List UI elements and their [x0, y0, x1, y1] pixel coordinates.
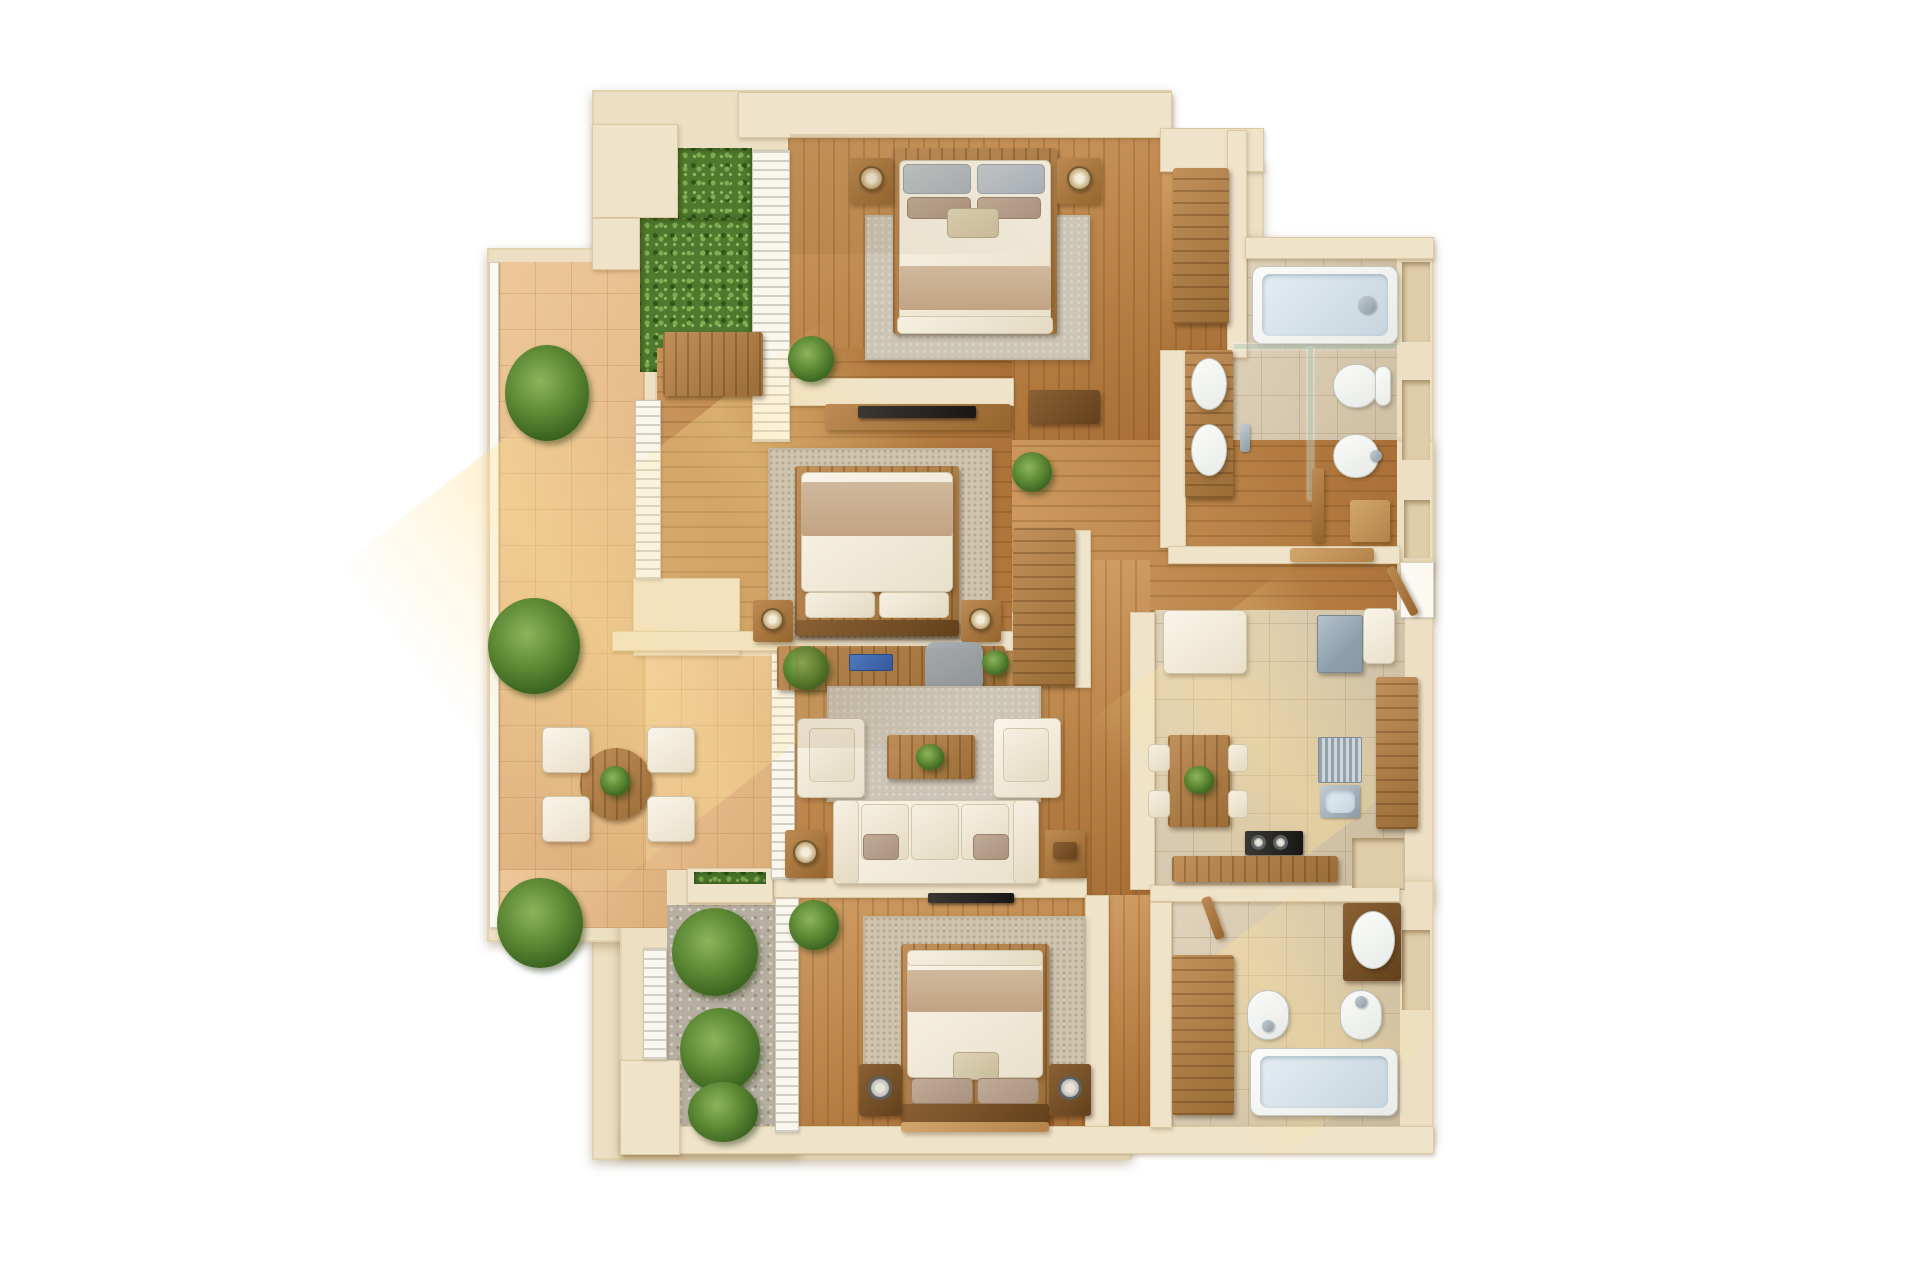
wall-top: [738, 92, 1172, 138]
bidet-2-tap: [1355, 996, 1367, 1008]
bed-3-footroll: [907, 950, 1043, 966]
wall-top-right-patch: [1160, 128, 1264, 172]
terrace-table-plant: [600, 766, 630, 796]
bed-2-headboard: [795, 620, 959, 636]
niche-right-d: [1402, 930, 1430, 1010]
hall-floor-lower: [1108, 895, 1150, 1128]
terrace-chair-c: [542, 796, 590, 842]
kitchen-burner-a: [1251, 835, 1266, 850]
bed-1-pillow-b: [977, 164, 1045, 194]
kitchen-counter-bottom: [1172, 856, 1338, 882]
window-planter-left: [643, 948, 667, 1060]
wall-bathroom-1-top: [1245, 237, 1434, 259]
bed-1-cushion: [947, 208, 999, 238]
shower-glass-h: [1234, 344, 1397, 349]
bed-1-pillow-a: [903, 164, 971, 194]
wall-planter-corner: [620, 1060, 680, 1155]
bed-2-pillow-b: [879, 592, 949, 618]
terrace-palm-mid: [488, 598, 580, 694]
sofa-arm-right: [1013, 800, 1039, 884]
kitchen-burner-b: [1273, 835, 1288, 850]
terrace-chair-d: [647, 796, 695, 842]
bed-3-mat: [901, 1122, 1049, 1132]
desk-plant-left: [783, 646, 829, 690]
kitchen-chair-d: [1228, 790, 1248, 818]
bedroom-1-wardrobe: [1173, 168, 1229, 324]
kitchen-counter-right: [1376, 677, 1418, 829]
kitchen-sink-drainer: [1318, 737, 1362, 783]
wall-divider-strip: [1075, 530, 1091, 688]
terrace-console-planter: [694, 872, 766, 884]
bathroom-1-shelf: [1350, 500, 1390, 542]
bed-1-bench: [897, 316, 1053, 334]
niche-right-c: [1404, 500, 1430, 558]
wall-top-left-step: [592, 218, 640, 270]
wall-bathroom-2-left: [1150, 902, 1172, 1128]
bathroom-2-vanity: [1172, 955, 1234, 1115]
hall-divider-cabinet: [1013, 528, 1075, 686]
planter-palm-b: [680, 1008, 760, 1092]
sofa-cushion-b: [911, 804, 959, 860]
entry-shelf: [1290, 548, 1374, 562]
kitchen-chair-b: [1148, 790, 1170, 818]
planter-palm-a: [672, 908, 758, 996]
sofa-arm-left: [833, 800, 859, 884]
kitchen-chair-a: [1148, 744, 1170, 772]
bed-3-blanket: [907, 970, 1043, 1012]
bed-1-lamp-right: [1067, 166, 1092, 191]
bathroom-1-sink-a: [1191, 358, 1227, 410]
bed-2-lamp-left: [761, 608, 784, 631]
toilet-1-tank: [1375, 366, 1391, 406]
bed-3-pillow-b: [977, 1078, 1039, 1104]
bed-3-cushion: [953, 1052, 999, 1080]
floor-plan-stage: [0, 0, 1920, 1280]
sofa-throw-left: [863, 834, 899, 860]
wall-top-left-corner: [592, 124, 678, 218]
kitchen-counter-top-left: [1163, 610, 1247, 674]
bedroom-1-plant: [788, 336, 834, 382]
living-tv: [928, 893, 1014, 903]
desk-chair: [925, 642, 983, 692]
bidet-1-tap: [1370, 450, 1382, 462]
hall-plant: [1012, 452, 1052, 492]
terrace-chair-a: [542, 727, 590, 773]
terrace-palm-top: [505, 345, 589, 441]
bed-2-lamp-right: [969, 608, 992, 631]
wall-bathroom-1-left: [1160, 350, 1186, 548]
bathtub-1-faucet: [1358, 296, 1376, 314]
bathroom-1-sink-b: [1191, 424, 1227, 476]
bedroom-2-closet: [663, 332, 763, 396]
side-lamp-left: [793, 840, 818, 865]
kitchen-chair-c: [1228, 744, 1248, 772]
toilet-2: [1247, 990, 1289, 1040]
kitchen-fridge: [1317, 615, 1363, 673]
bed-3-pillow-a: [911, 1078, 973, 1104]
window-bedroom-1-left: [752, 150, 790, 442]
sofa-throw-right: [973, 834, 1009, 860]
bedroom-3-plant: [789, 900, 839, 950]
bathtub-2-water: [1260, 1056, 1388, 1108]
desk-plant-right: [982, 650, 1009, 675]
bathroom-2-sink: [1351, 911, 1395, 969]
planter-palm-c: [688, 1082, 758, 1142]
terrace-palm-low: [497, 878, 583, 968]
terrace-railing: [489, 262, 499, 928]
bedroom-2-tv: [858, 406, 976, 418]
desk-laptop: [849, 654, 893, 671]
bed-1-blanket: [899, 266, 1051, 310]
wall-bedroom-1-bottom: [756, 378, 1014, 406]
bed-3-headboard: [901, 1104, 1049, 1122]
bed-2-pillow-a: [805, 592, 875, 618]
toilet-1-bowl: [1333, 364, 1379, 408]
niche-right-b: [1402, 380, 1430, 460]
bed-2-blanket: [801, 482, 953, 536]
shower-head: [1240, 424, 1250, 452]
kitchen-table-plant: [1184, 766, 1214, 794]
toilet-2-seat: [1262, 1020, 1274, 1032]
niche-kitchen-pantry: [1352, 838, 1404, 888]
armchair-left-cushion: [809, 728, 855, 782]
bed-3-speaker-left-cone: [868, 1076, 892, 1100]
bed-3-speaker-right-cone: [1058, 1076, 1082, 1100]
coffee-table-plant: [916, 744, 944, 770]
kitchen-cabinet-top-right: [1363, 608, 1395, 664]
armchair-right-cushion: [1003, 728, 1049, 782]
bed-1-lamp-left: [859, 166, 884, 191]
terrace-chair-b: [647, 727, 695, 773]
kitchen-sink-inner: [1325, 790, 1355, 813]
window-bedroom-2-left: [635, 400, 661, 580]
side-books-right: [1053, 842, 1077, 859]
wall-bedroom-1-right: [1227, 130, 1247, 358]
bathroom-1-door: [1312, 468, 1324, 542]
niche-right-a: [1402, 262, 1430, 342]
hall-bench: [1028, 390, 1100, 424]
planter-top-greens-a: [678, 148, 752, 220]
